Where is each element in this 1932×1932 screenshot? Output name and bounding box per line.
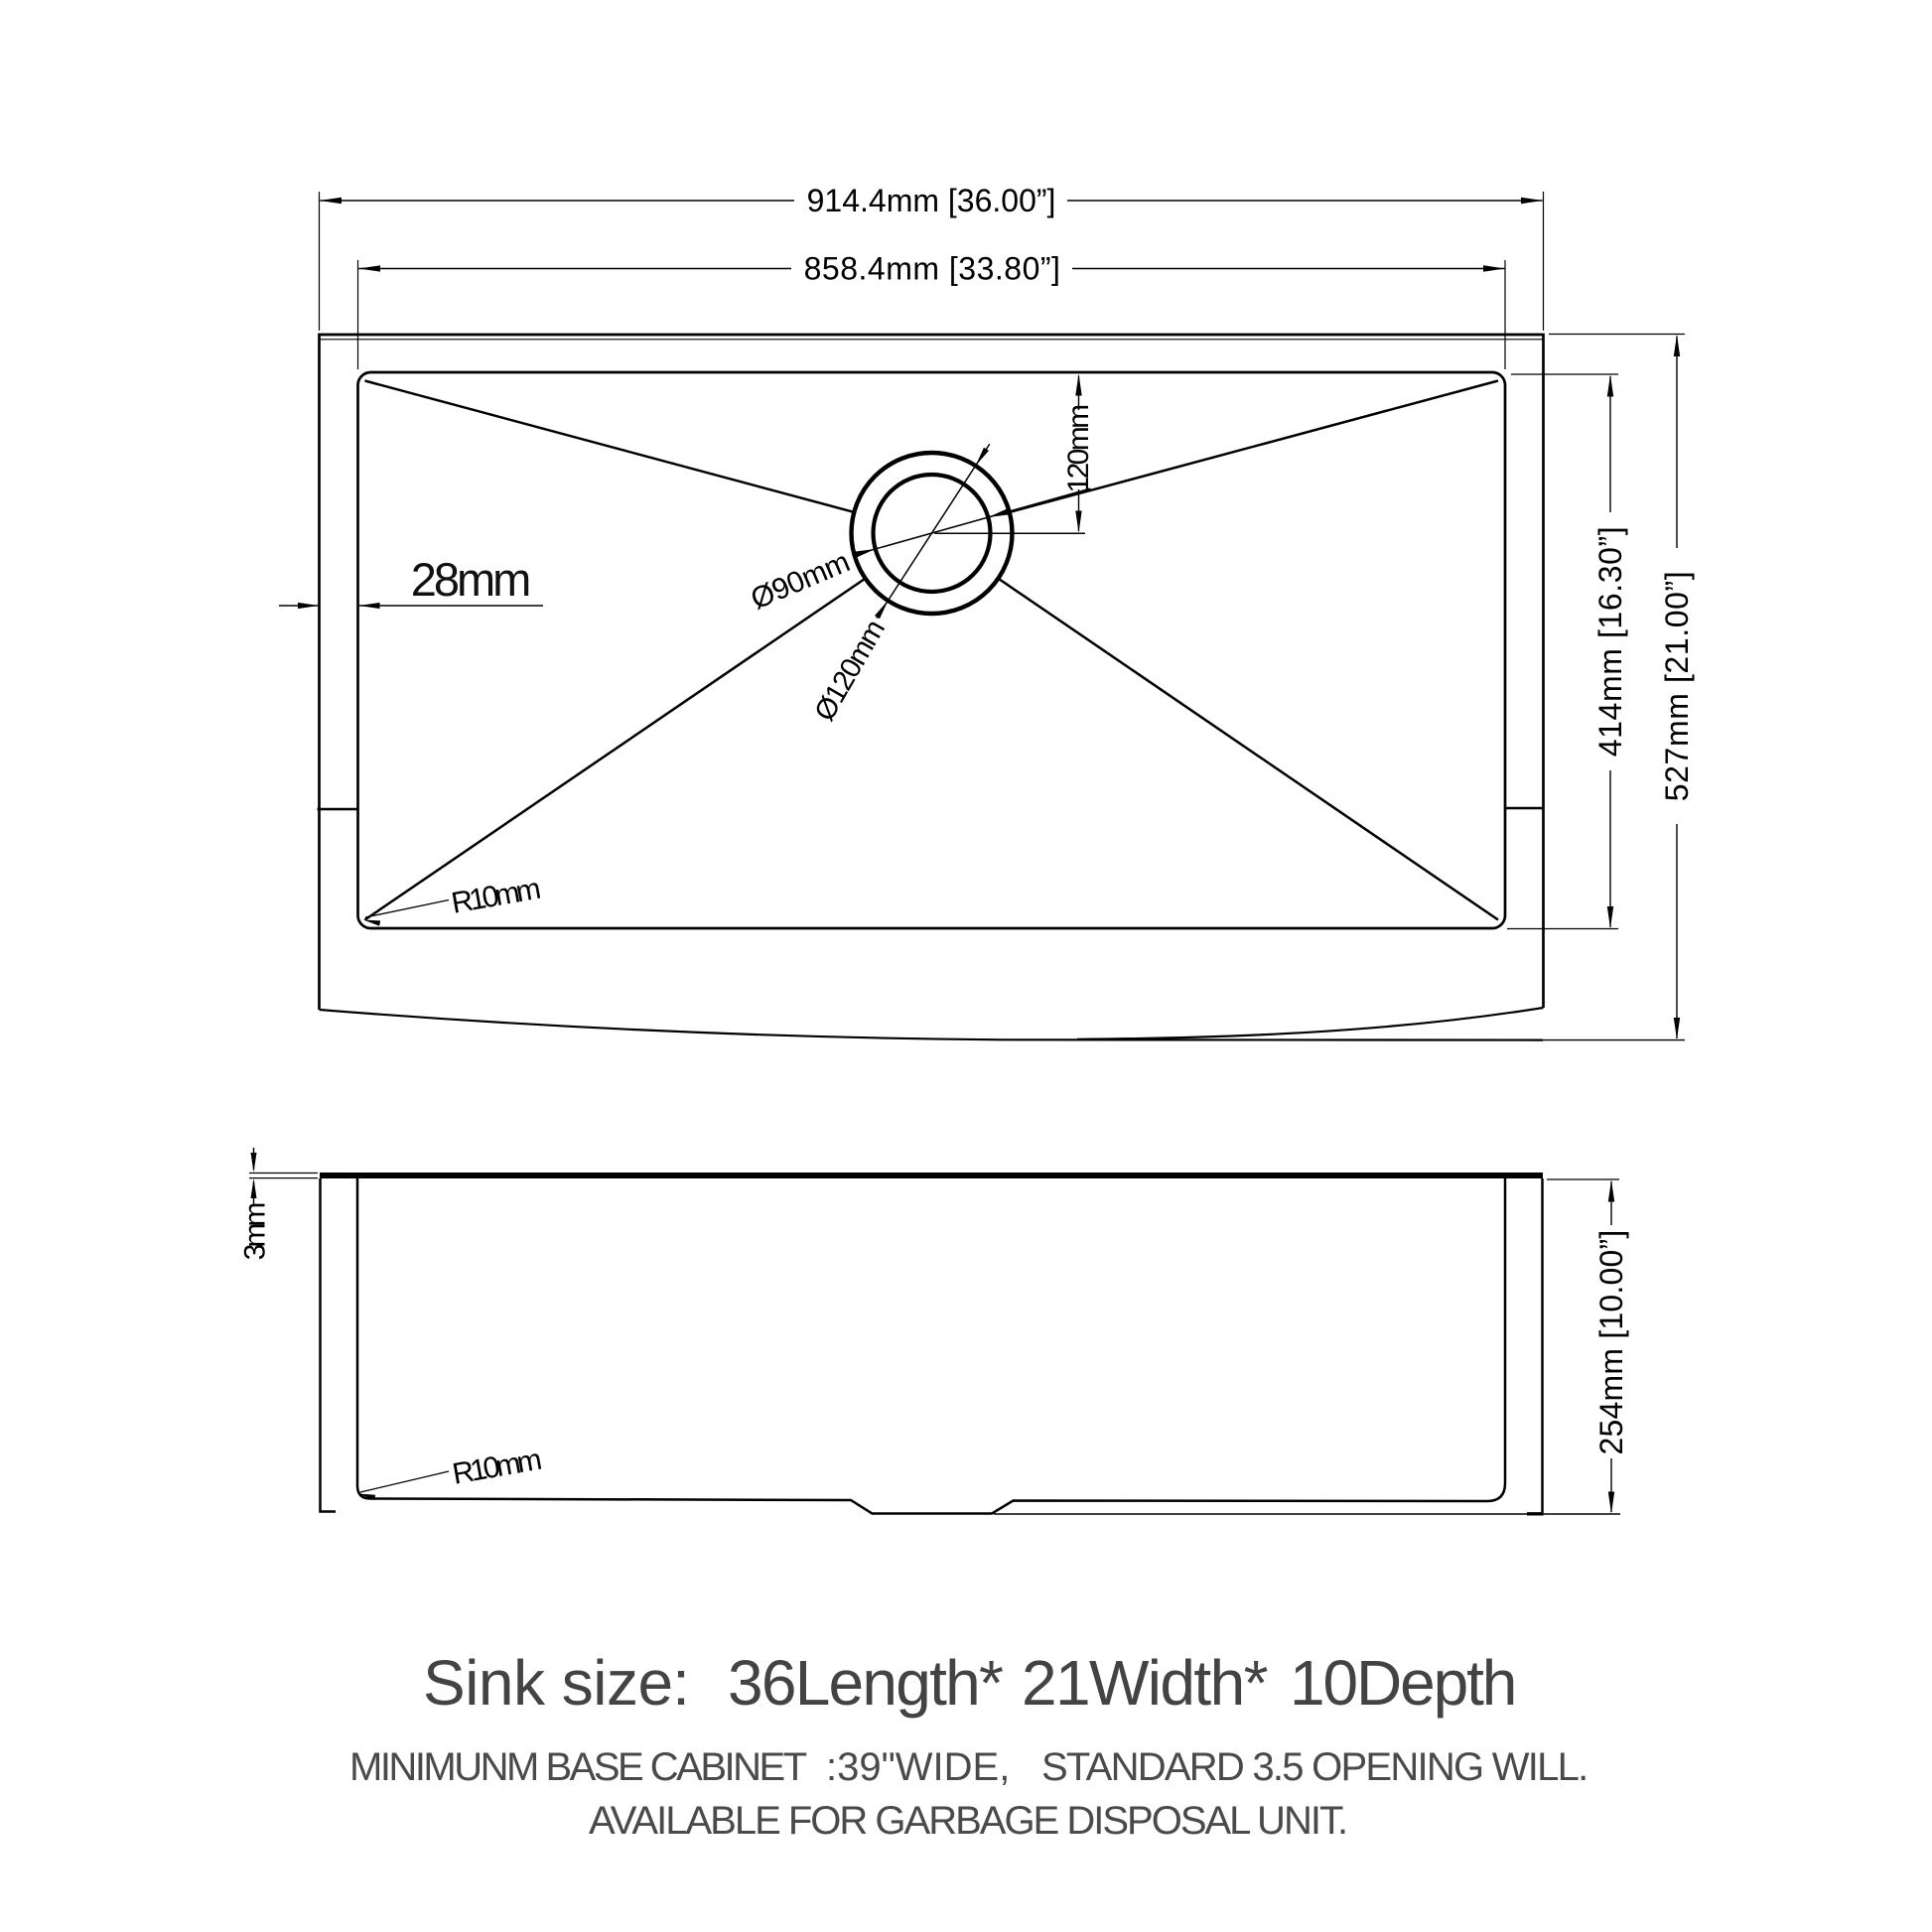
- svg-text:858.4mm [33.80”]: 858.4mm [33.80”]: [804, 251, 1061, 287]
- svg-text:120mm: 120mm: [1062, 405, 1095, 493]
- svg-text::: :: [672, 1647, 690, 1719]
- svg-text:914.4mm [36.00”]: 914.4mm [36.00”]: [807, 183, 1056, 218]
- svg-text:28mm: 28mm: [411, 553, 529, 606]
- svg-text:Sink size: Sink size: [423, 1647, 673, 1719]
- svg-text:414mm [16.30”]: 414mm [16.30”]: [1592, 526, 1628, 758]
- svg-text:3mm: 3mm: [239, 1203, 272, 1261]
- svg-text:36Length*: 36Length*: [728, 1647, 1003, 1719]
- svg-text:21Width*: 21Width*: [1022, 1647, 1268, 1719]
- svg-text::39"WIDE,: :39"WIDE,: [826, 1745, 1010, 1789]
- svg-text:254mm [10.00”]: 254mm [10.00”]: [1593, 1230, 1629, 1455]
- svg-text:527mm [21.00”]: 527mm [21.00”]: [1659, 571, 1695, 802]
- svg-text:10Depth: 10Depth: [1290, 1647, 1515, 1719]
- svg-text:STANDARD 3.5 OPENING WILL.: STANDARD 3.5 OPENING WILL.: [1041, 1745, 1587, 1789]
- svg-text:MINIMUNM BASE CABINET: MINIMUNM BASE CABINET: [349, 1745, 807, 1789]
- svg-text:AVAILABLE FOR GARBAGE DISPOSAL: AVAILABLE FOR GARBAGE DISPOSAL UNIT.: [589, 1799, 1346, 1843]
